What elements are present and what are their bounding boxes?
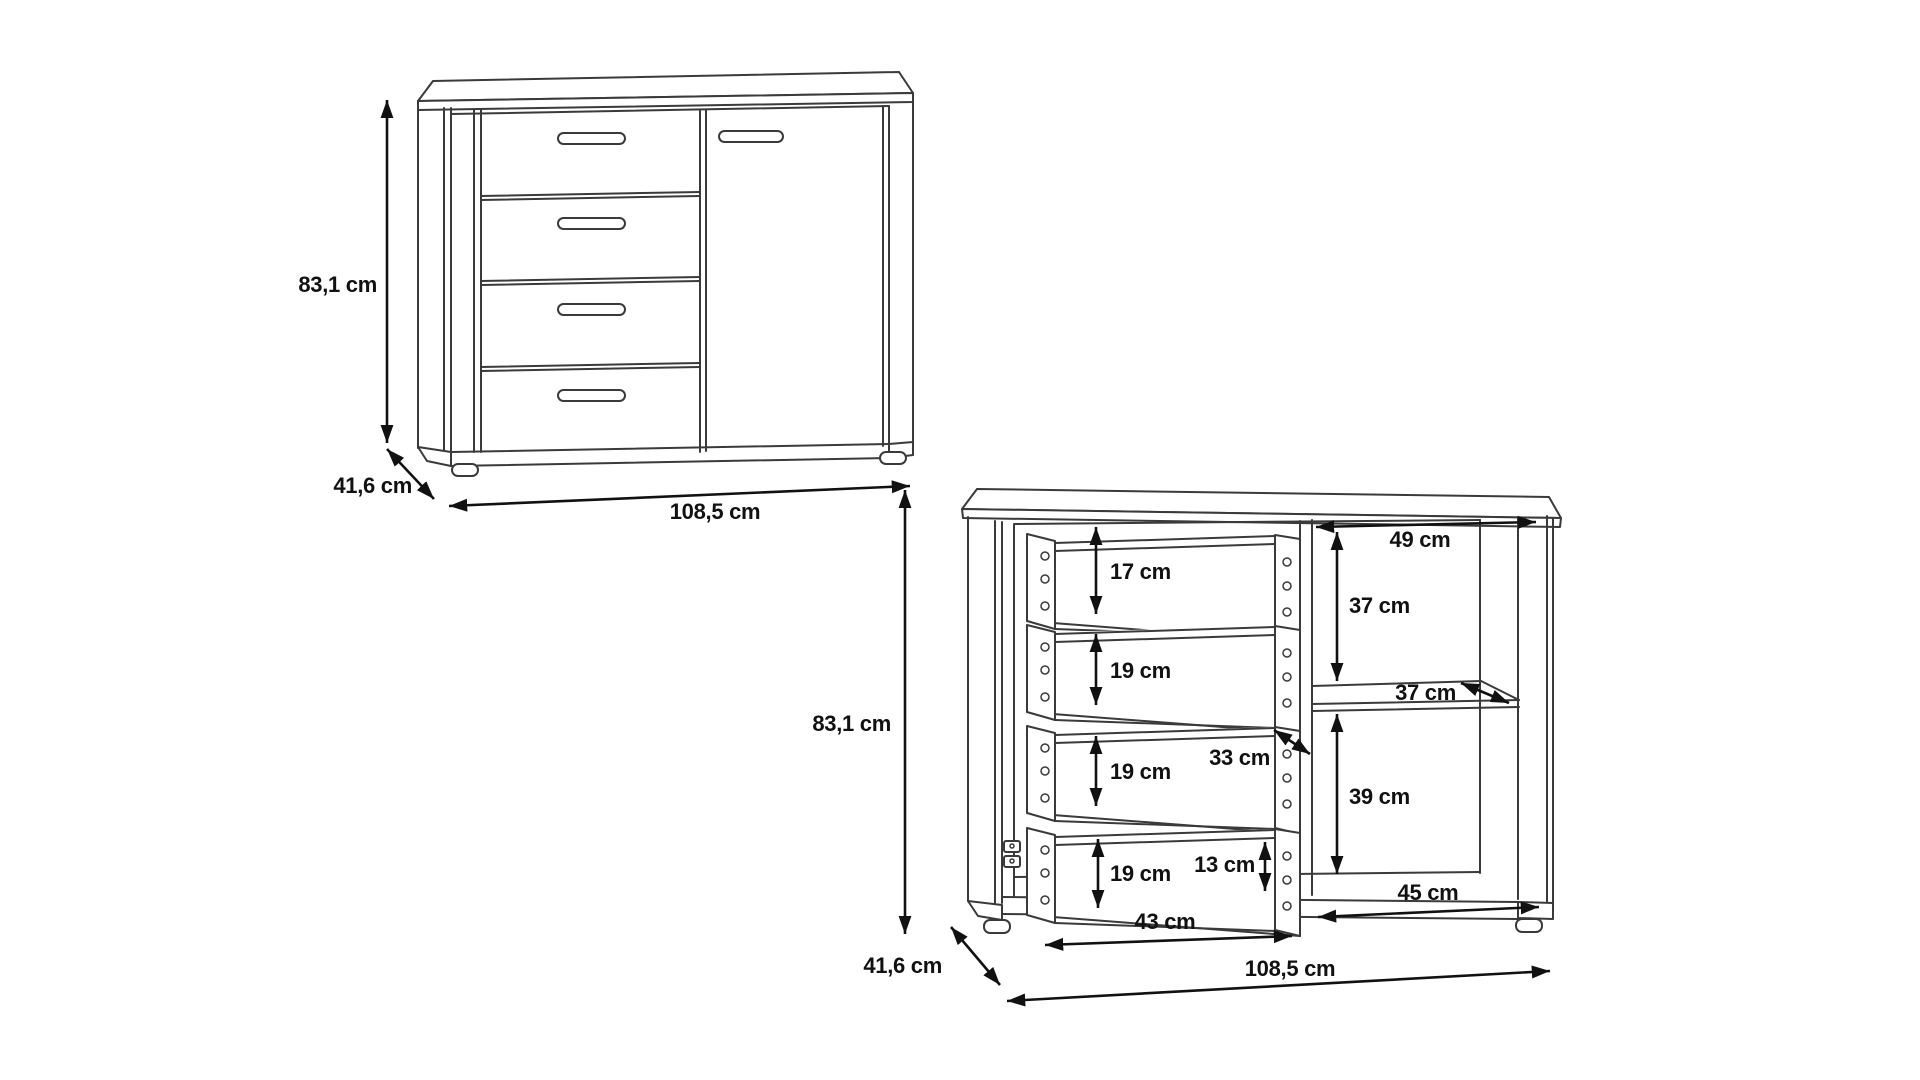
- shelf-depth-label: 37 cm: [1395, 680, 1456, 705]
- drawer-depth-label: 33 cm: [1209, 745, 1270, 770]
- drawer-handle: [558, 218, 625, 229]
- top-compartment-width-label: 49 cm: [1390, 527, 1451, 552]
- closed-width-label: 108,5 cm: [670, 499, 761, 524]
- bottom-drawer-width-arrow: [1045, 936, 1292, 945]
- cabinet-foot: [984, 920, 1010, 933]
- cabinet-foot: [452, 464, 478, 476]
- closed-height-label: 83,1 cm: [298, 272, 377, 297]
- drawer-handle: [558, 390, 625, 401]
- cabinet-foot: [1516, 919, 1542, 932]
- open-depth-label: 41,6 cm: [863, 953, 942, 978]
- bottom-drawer-width-label: 43 cm: [1135, 909, 1196, 934]
- bottom-drawer-front-height-label: 13 cm: [1194, 852, 1255, 877]
- open-width-label: 108,5 cm: [1245, 956, 1336, 981]
- drawer3-height-label: 19 cm: [1110, 759, 1171, 784]
- drawer2-height-label: 19 cm: [1110, 658, 1171, 683]
- open-height-label: 83,1 cm: [812, 711, 891, 736]
- closed-depth-label: 41,6 cm: [333, 473, 412, 498]
- furniture-dimension-diagram: 83,1 cm 41,6 cm 108,5 cm: [0, 0, 1920, 1080]
- drawer4-height-label: 19 cm: [1110, 861, 1171, 886]
- open-view-cabinet: [962, 489, 1561, 936]
- drawer-handle: [558, 304, 625, 315]
- closed-view-cabinet: [418, 72, 913, 476]
- bottom-compartment-width-arrow: [1318, 907, 1539, 917]
- cabinet-foot: [880, 452, 906, 464]
- door-handle: [719, 131, 783, 142]
- drawer-handle: [558, 133, 625, 144]
- lower-right-height-label: 39 cm: [1349, 784, 1410, 809]
- bottom-compartment-width-label: 45 cm: [1398, 880, 1459, 905]
- upper-right-height-label: 37 cm: [1349, 593, 1410, 618]
- open-drawer-1: [1027, 534, 1300, 642]
- drawer1-height-label: 17 cm: [1110, 559, 1171, 584]
- open-depth-arrow: [951, 927, 1000, 985]
